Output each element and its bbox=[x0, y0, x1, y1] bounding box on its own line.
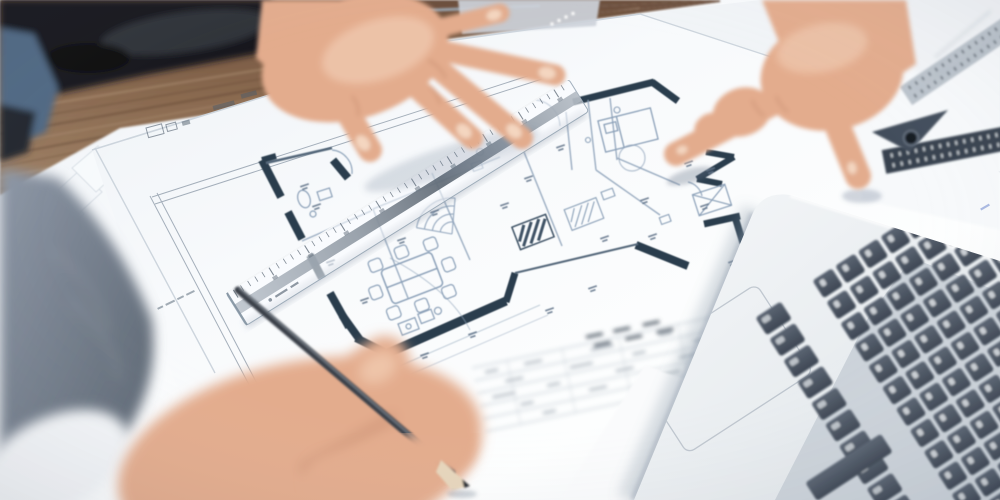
vignette bbox=[0, 0, 1000, 500]
photo-canvas bbox=[0, 0, 1000, 500]
photograph-architects-blueprint: Close-up photograph: architects collabor… bbox=[0, 0, 1000, 500]
